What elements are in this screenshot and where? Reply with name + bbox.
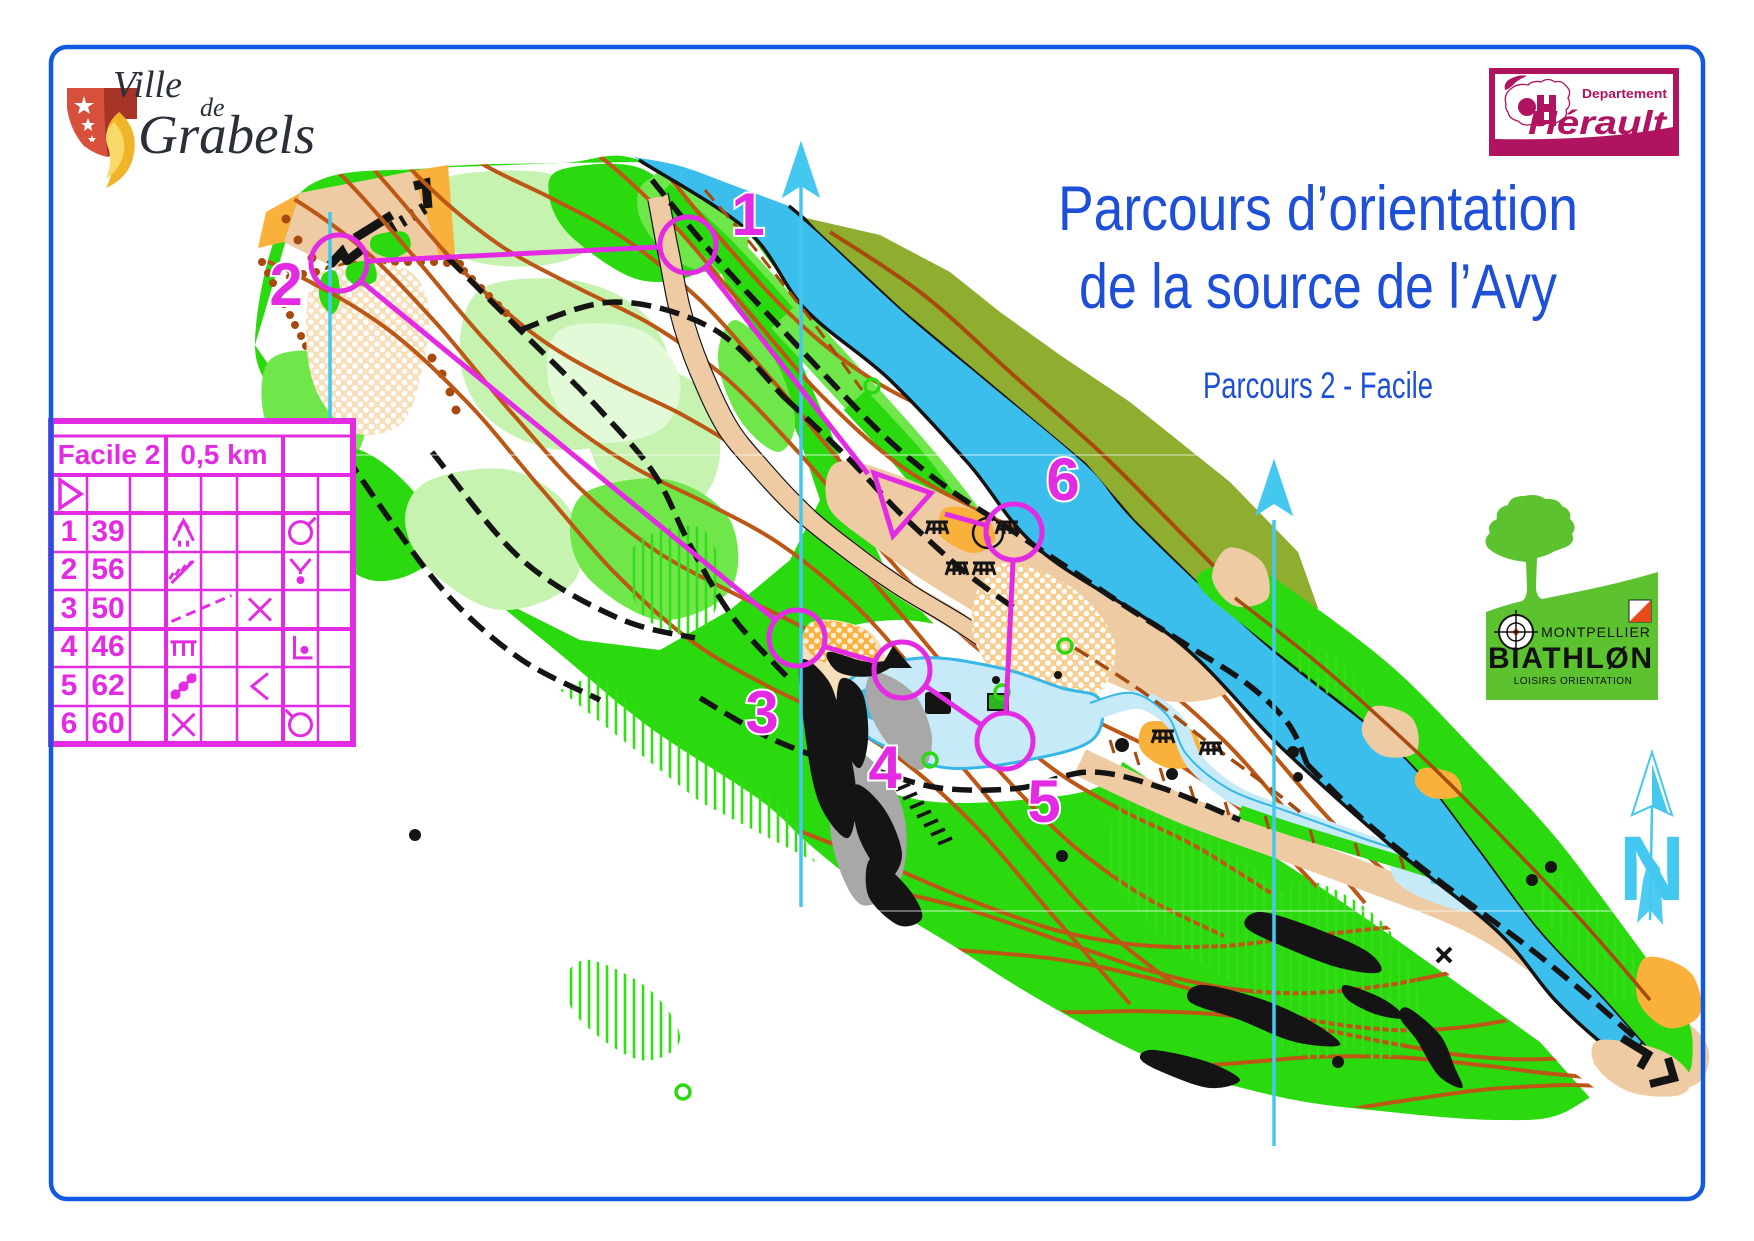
svg-text:1: 1 xyxy=(731,181,764,248)
svg-text:3: 3 xyxy=(745,679,778,746)
svg-text:MONTPELLIER: MONTPELLIER xyxy=(1541,624,1651,640)
svg-text:0,5 km: 0,5 km xyxy=(180,439,267,470)
svg-text:50: 50 xyxy=(91,592,124,625)
svg-text:BIATHLØN: BIATHLØN xyxy=(1488,642,1652,675)
svg-text:4: 4 xyxy=(61,630,78,663)
svg-text:Grabels: Grabels xyxy=(138,104,315,165)
svg-text:5: 5 xyxy=(61,669,78,702)
svg-text:6: 6 xyxy=(1046,446,1079,513)
svg-text:Departement: Departement xyxy=(1582,86,1668,101)
svg-text:Parcours d’orientation: Parcours d’orientation xyxy=(1058,174,1578,244)
svg-text:Parcours 2 - Facile: Parcours 2 - Facile xyxy=(1203,365,1433,406)
svg-text:6: 6 xyxy=(61,707,78,740)
svg-text:39: 39 xyxy=(91,515,124,548)
svg-text:5: 5 xyxy=(1027,768,1060,835)
svg-text:Ville: Ville xyxy=(113,64,182,106)
svg-text:56: 56 xyxy=(91,553,124,586)
svg-text:60: 60 xyxy=(91,707,124,740)
svg-text:1: 1 xyxy=(61,515,78,548)
svg-text:3: 3 xyxy=(61,592,78,625)
svg-text:LOISIRS ORIENTATION: LOISIRS ORIENTATION xyxy=(1514,676,1633,687)
svg-text:4: 4 xyxy=(868,734,902,801)
svg-text:Hérault: Hérault xyxy=(1528,104,1668,141)
svg-text:N: N xyxy=(1619,818,1685,920)
svg-text:2: 2 xyxy=(61,553,78,586)
svg-text:62: 62 xyxy=(91,669,124,702)
svg-text:2: 2 xyxy=(269,251,302,318)
svg-text:de la source de l’Avy: de la source de l’Avy xyxy=(1079,252,1557,322)
svg-text:46: 46 xyxy=(91,630,124,663)
svg-text:Facile 2: Facile 2 xyxy=(58,439,161,470)
